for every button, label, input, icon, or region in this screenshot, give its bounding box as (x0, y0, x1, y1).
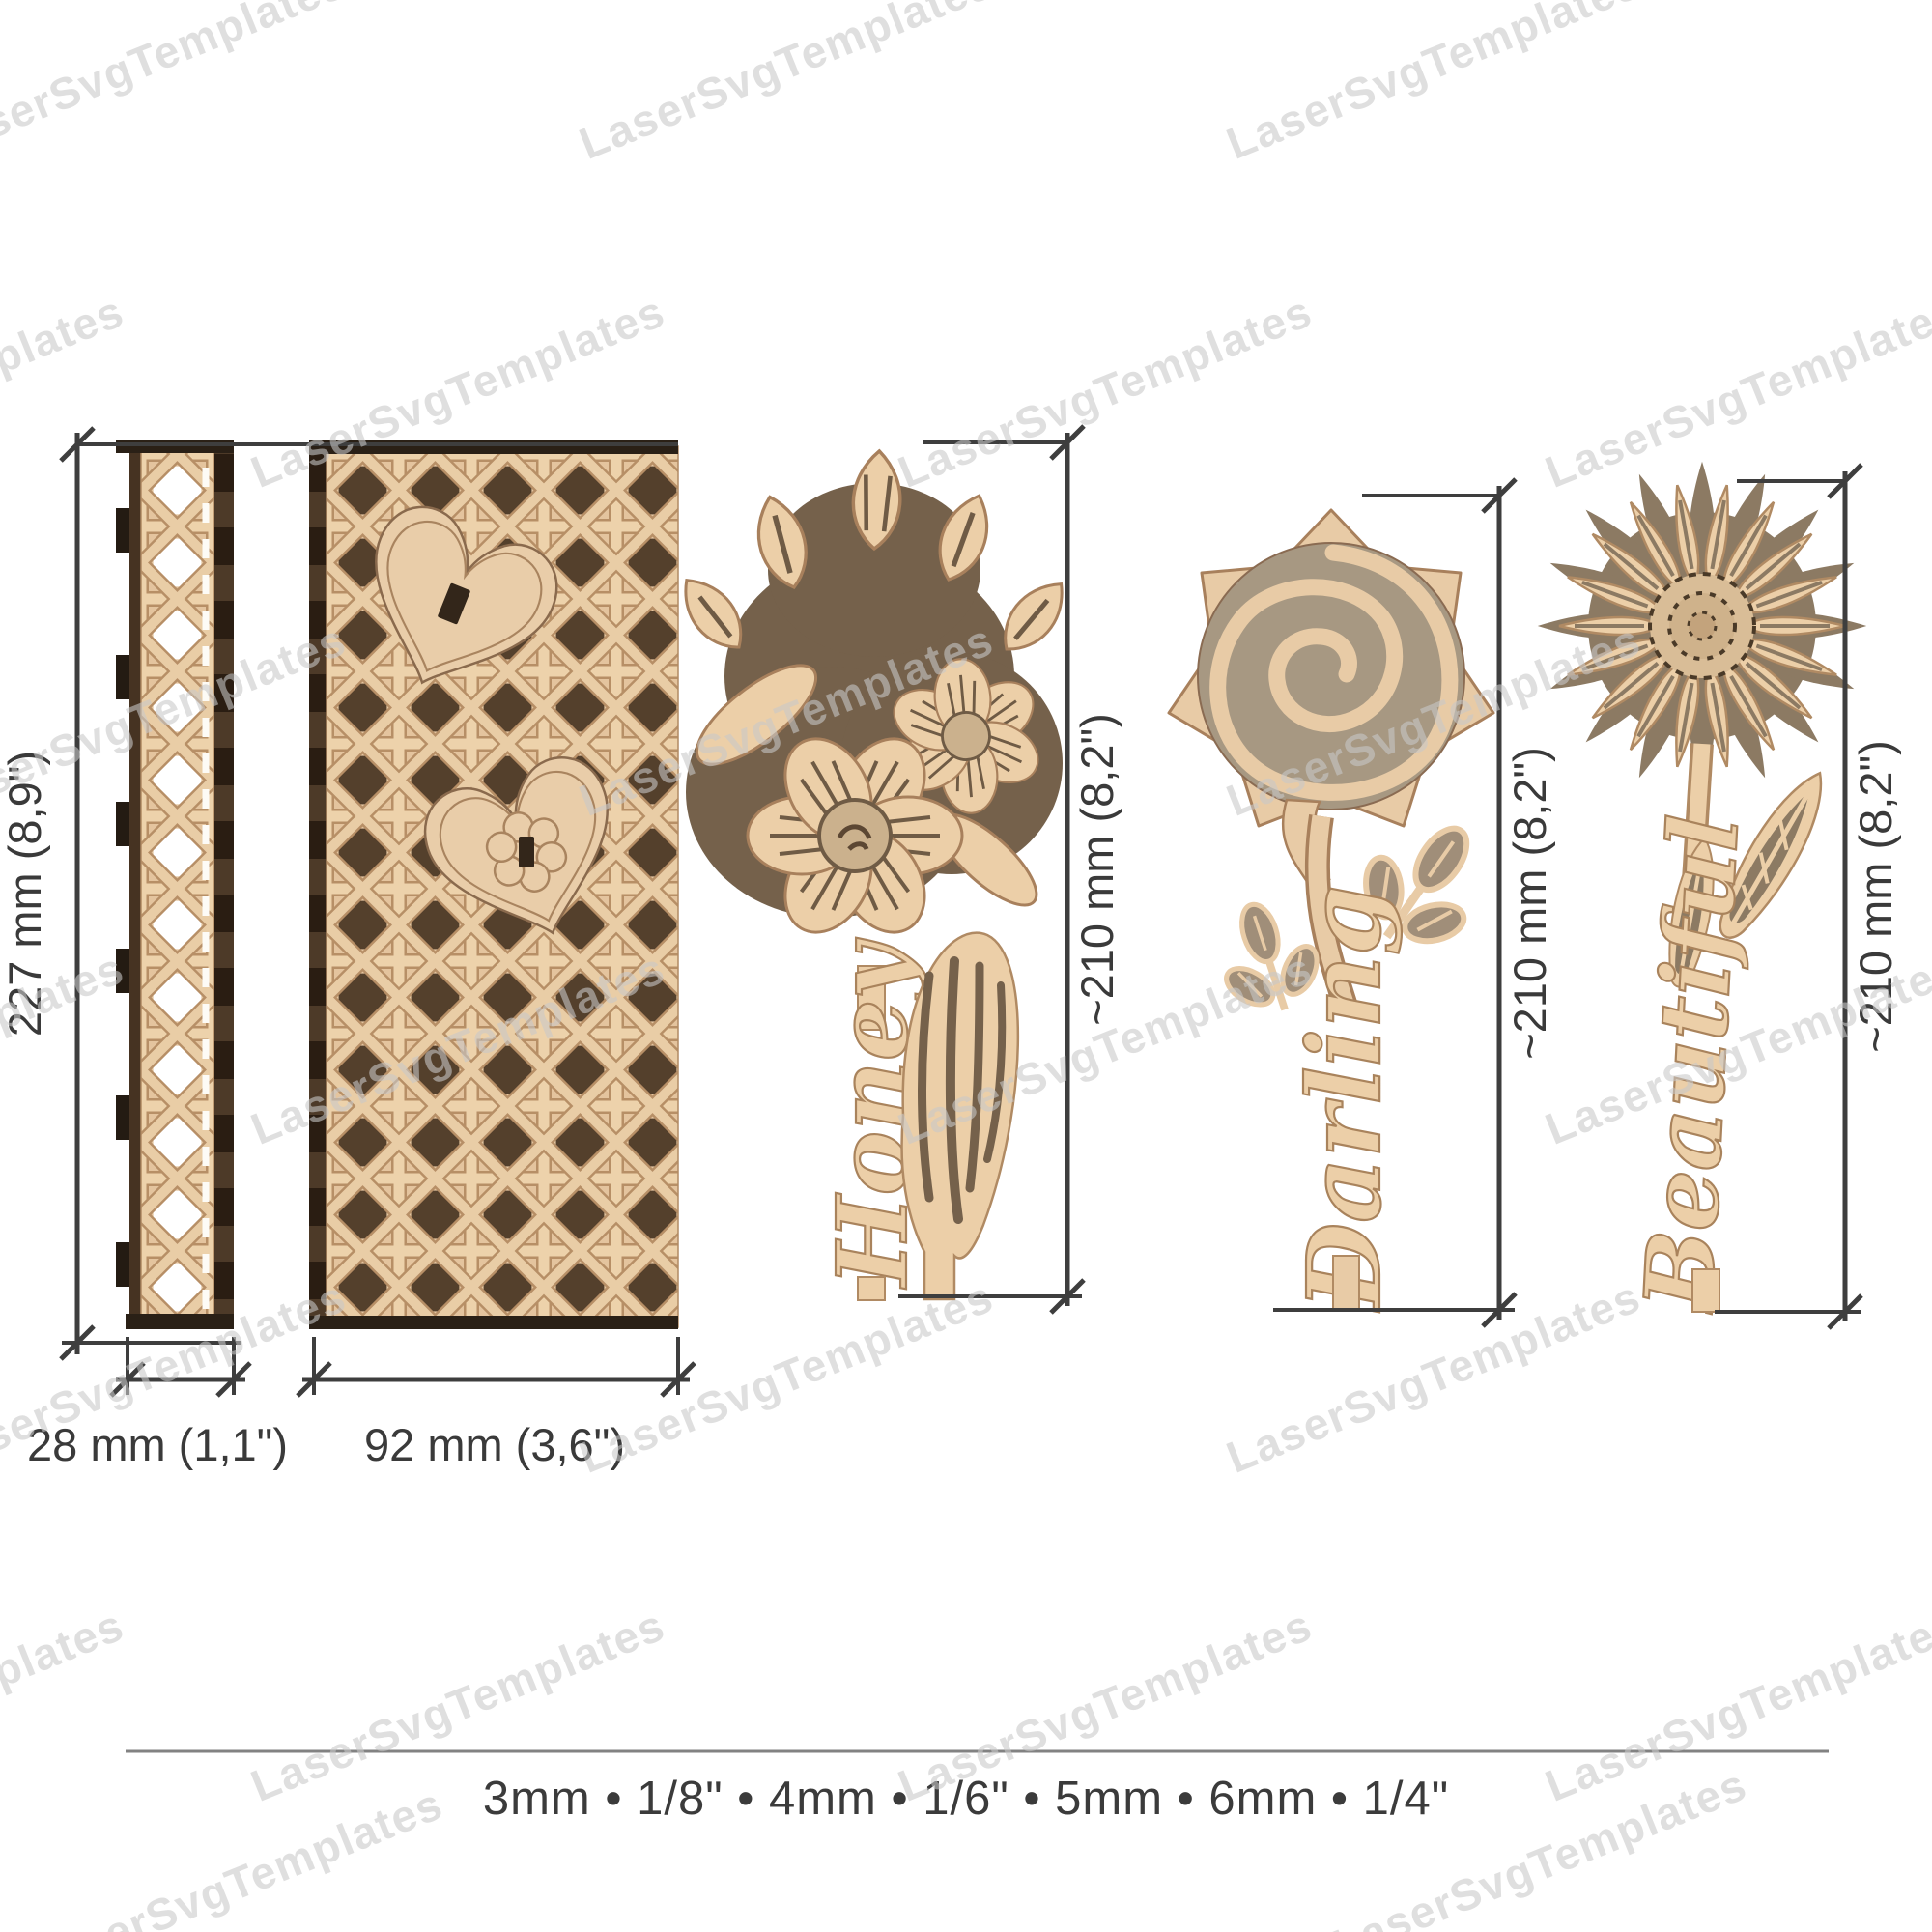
flower-daisy-beautiful: Beautiful (1538, 462, 1866, 1316)
panel-narrow (116, 440, 234, 1329)
panel-narrow-right-edge (214, 446, 234, 1327)
watermark-text: LaserSvgTemplates (1539, 286, 1932, 497)
daisy-head (1538, 462, 1866, 790)
panel-wide-bottom-edge (309, 1316, 678, 1329)
rose-stem-tab (1333, 1256, 1359, 1310)
watermark-text: LaserSvgTemplates (1220, 1271, 1648, 1483)
watermark-text: LaserSvgTemplates (0, 1600, 130, 1811)
daffodil-trumpet (819, 800, 891, 871)
watermark-text: LaserSvgTemplates (573, 0, 1001, 169)
panel-wide-left-edge (309, 446, 327, 1327)
flower2-height-label: ~210 mm (8,2") (1504, 747, 1555, 1060)
flower1-height-label: ~210 mm (8,2") (1071, 713, 1122, 1026)
watermark-text: LaserSvgTemplates (892, 286, 1320, 497)
heart-slot (519, 837, 534, 867)
finger-joint-tabs (116, 462, 129, 1312)
daffodil-stem-tab (858, 1277, 885, 1300)
panel-narrow-left-edge (129, 446, 141, 1327)
watermark-text: LaserSvgTemplates (0, 0, 353, 169)
watermark-text: LaserSvgTemplates (0, 286, 130, 497)
flower-daffodil-honey: Honey (670, 450, 1076, 1300)
daisy-stem-tab (1692, 1269, 1719, 1312)
panel-wide (309, 440, 678, 1329)
flower-rose-darling: Darling (1169, 510, 1514, 1313)
laser-template-sheet: Honey (0, 0, 1932, 1932)
watermark-text: LaserSvgTemplates (1220, 0, 1648, 169)
watermark-text: LaserSvgTemplates (22, 1778, 450, 1932)
